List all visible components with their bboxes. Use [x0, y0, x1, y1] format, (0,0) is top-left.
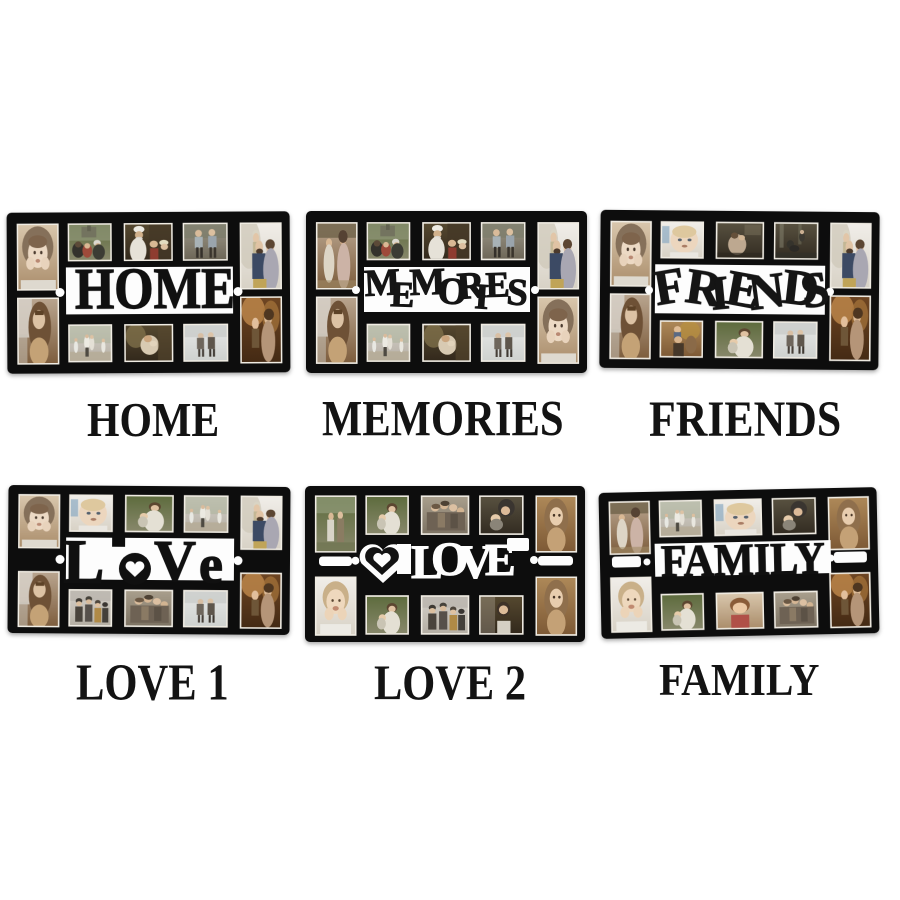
svg-text:LOVE 2: LOVE 2: [374, 654, 526, 710]
svg-text:MEMORIES: MEMORIES: [322, 390, 564, 446]
svg-text:FAMILY: FAMILY: [659, 654, 819, 705]
svg-text:e: e: [199, 534, 223, 594]
svg-text:V: V: [154, 528, 196, 593]
svg-text:HOME: HOME: [75, 256, 235, 322]
svg-text:L: L: [63, 528, 105, 596]
svg-text:S: S: [505, 271, 529, 314]
svg-text:LOVE 1: LOVE 1: [76, 654, 229, 711]
svg-text:FAMILY: FAMILY: [660, 532, 825, 586]
svg-text:FRIENDS: FRIENDS: [649, 392, 841, 448]
svg-text:HOME: HOME: [87, 392, 219, 447]
